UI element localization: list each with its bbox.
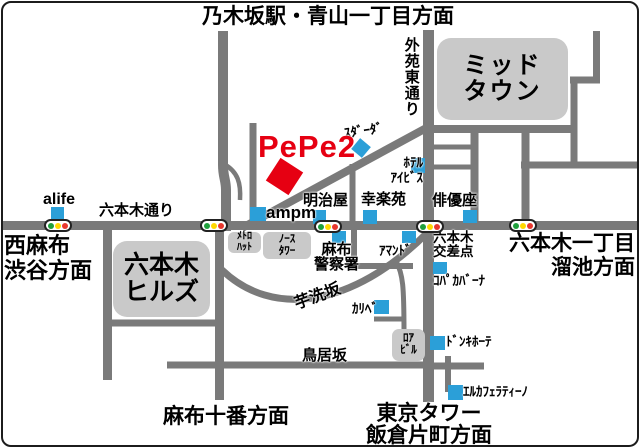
road-karibe-branch [396, 261, 404, 333]
road-to-nogizaka [223, 31, 226, 231]
label-el-cafe-latino: ｴﾙｶﾌｪﾗﾃｨｰﾉ [463, 385, 528, 399]
hills-label: 六本木 [124, 252, 199, 279]
label-azabu-police: 麻布 警察署 [314, 242, 359, 273]
direction-south-tokyotower-iikura: 東京タワー 飯倉片町方面 [348, 403, 510, 447]
direction-south-azabujuban: 麻布十番方面 [163, 406, 289, 428]
direction-west-nishiazabu-shibuya: 西麻布 渋谷方面 [4, 233, 92, 283]
marker-kourakuen [363, 210, 377, 224]
building-roa: ﾛｱ ﾋﾞﾙ [392, 329, 425, 361]
marker-el-cafe-latino [448, 385, 463, 400]
traffic-light-icon [416, 220, 444, 233]
label-roppongi-crossing: 六本木 交差点 [433, 231, 474, 258]
marker-ampm [250, 207, 266, 221]
label-amand: ｱﾏﾝﾄﾞ [379, 244, 412, 258]
traffic-light-icon [509, 219, 537, 232]
road-label-gaien-higashi-dori: 外苑東通り [403, 37, 419, 117]
building-midtown: ミッド タウン [437, 38, 568, 120]
marker-don-quijote [430, 336, 445, 350]
traffic-light-icon [314, 220, 342, 233]
label-kourakuen: 幸楽苑 [361, 192, 406, 208]
direction-top-nogizaka-aoyama: 乃木坂駅・青山一丁目方面 [202, 6, 454, 28]
label-ampm: ampm [266, 204, 316, 222]
label-karibe: ｶﾘﾍﾞ [352, 302, 378, 316]
label-alife: alife [43, 192, 75, 209]
label-copacabana: ｺﾊﾟｶﾊﾞｰﾅ [433, 274, 485, 288]
building-roppongi-hills: 六本木 ヒルズ [113, 241, 210, 317]
label-hotel-ibis: ﾎﾃﾙ ｱｲﾋﾞｽ [378, 156, 423, 185]
direction-east-roppongi-itchome-tameike: 六本木一丁目 溜池方面 [509, 232, 635, 281]
marker-haiyuza [463, 210, 477, 223]
marker-amand [402, 231, 416, 243]
access-map: ミッド タウン 六本木 ヒルズ ﾒﾄﾛ ﾊｯﾄ ﾉｰｽ ﾀﾜｰ ﾛｱ ﾋﾞﾙ 乃… [0, 0, 640, 448]
midtown-label: ミッド [464, 53, 542, 79]
road-label-torii-zaka: 鳥居坂 [302, 348, 347, 364]
label-haiyuza: 俳優座 [432, 193, 477, 209]
traffic-light-icon [44, 219, 72, 232]
destination-label-pepe2: PePe2 [258, 131, 356, 164]
building-north-tower: ﾉｰｽ ﾀﾜｰ [263, 232, 311, 259]
road-label-roppongi-dori: 六本木通り [99, 203, 174, 219]
building-metro-hat: ﾒﾄﾛ ﾊｯﾄ [228, 232, 261, 253]
north-tower-label: ﾉｰｽ [279, 234, 296, 246]
metro-hat-label: ﾒﾄﾛ [237, 232, 252, 243]
label-don-quijote: ﾄﾞﾝｷﾎｰﾃ [446, 335, 492, 349]
traffic-light-icon [200, 219, 228, 232]
